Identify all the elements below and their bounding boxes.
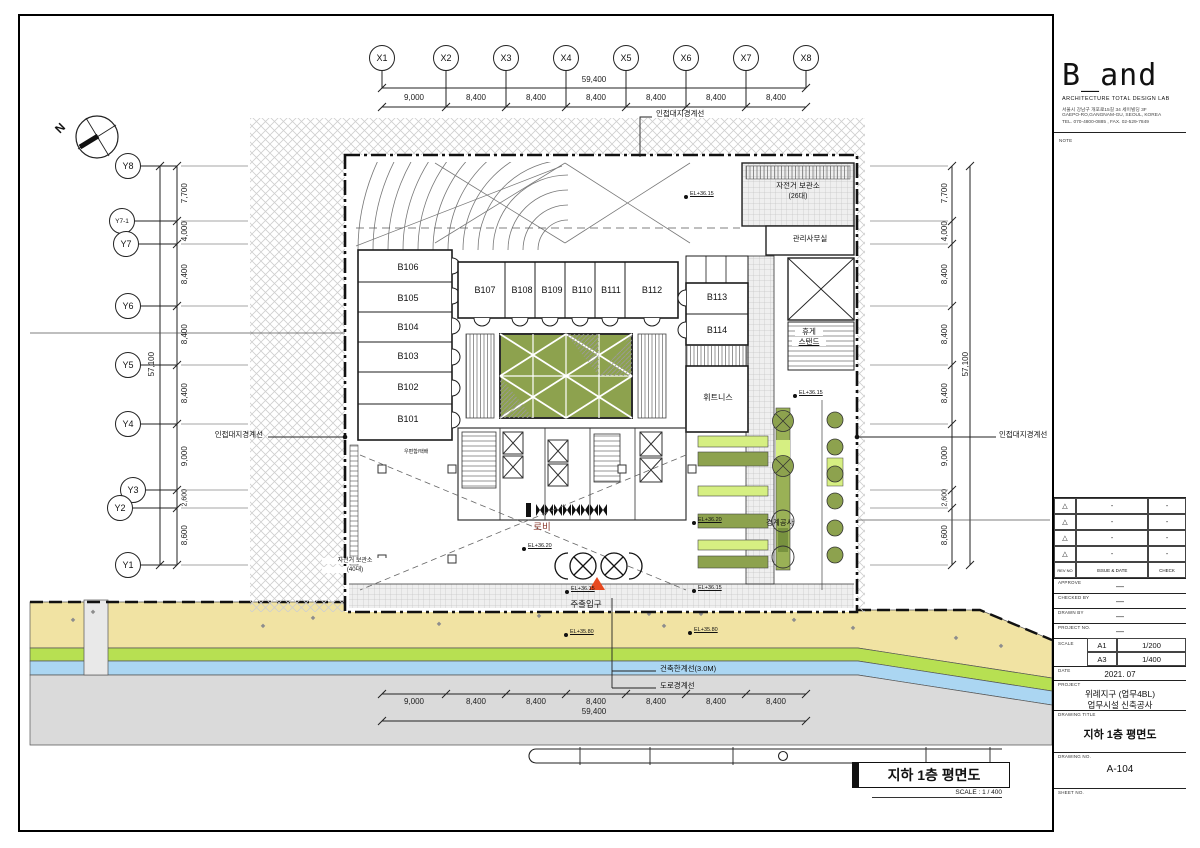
grid-bubble-x4: X4 <box>553 45 579 71</box>
rev-issue: - <box>1076 530 1148 546</box>
plan-drawing-svg <box>0 0 1200 848</box>
room-label-b106: B106 <box>370 263 446 272</box>
level-el3615-top: EL+36.15 <box>690 192 714 198</box>
dim-bottom-total: 59,400 <box>560 708 628 716</box>
title-block: B_and ARCHITECTURE TOTAL DESIGN LAB 서울시 … <box>1052 14 1184 832</box>
rev-check: - <box>1148 530 1186 546</box>
firm-address-1: 서울시 강남구 개포로15길 34 세이빌딩 3F <box>1062 106 1147 113</box>
rev-mark: △ <box>1054 546 1076 562</box>
mailbox-label: 우편함/택배 <box>404 450 428 455</box>
dim-right-total: 57,100 <box>962 339 970 389</box>
grid-bubble-y2: Y2 <box>107 495 133 521</box>
grid-bubble-y7: Y7 <box>113 231 139 257</box>
boundary-work-label: 경계공사 <box>766 519 794 527</box>
dim-top-seg: 8,400 <box>511 94 561 102</box>
room-label-b103: B103 <box>370 352 446 361</box>
drawing-scale-text: SCALE : 1 / 400 <box>872 789 1002 798</box>
dim-right-seg: 8,400 <box>941 312 949 356</box>
bike-storage-top-label: 자전거 보관소 <box>755 182 841 190</box>
sheet-no-label: SHEET NO. <box>1058 790 1084 795</box>
dim-top-seg: 8,400 <box>571 94 621 102</box>
dim-bottom-seg: 9,000 <box>389 698 439 706</box>
dim-bottom-seg: 8,400 <box>451 698 501 706</box>
site-boundary-label-top: 인접대지경계선 <box>656 110 704 118</box>
grid-bubble-y5: Y5 <box>115 352 141 378</box>
grid-bubble-y8: Y8 <box>115 153 141 179</box>
grid-bubble-x1: X1 <box>369 45 395 71</box>
dim-top-seg: 8,400 <box>691 94 741 102</box>
rev-mark: △ <box>1054 530 1076 546</box>
dim-top-seg: 8,400 <box>451 94 501 102</box>
approve-value: — <box>1054 582 1186 591</box>
dim-bottom-seg: 8,400 <box>511 698 561 706</box>
bike-storage-left-count: (40대) <box>322 567 388 573</box>
rev-mark: △ <box>1054 514 1076 530</box>
level-el3615-entrance: EL+36.15 <box>571 587 595 593</box>
scale-a3-label: A3 <box>1087 652 1117 666</box>
dim-top-seg: 8,400 <box>631 94 681 102</box>
room-label-b112: B112 <box>628 286 676 295</box>
dim-bottom-seg: 8,400 <box>631 698 681 706</box>
rev-check: - <box>1148 514 1186 530</box>
issue-date-header: ISSUE & DATE <box>1076 562 1148 578</box>
drawing-title-label: DRAWING TITLE <box>1058 712 1096 717</box>
rev-check: - <box>1148 546 1186 562</box>
firm-name: ARCHITECTURE TOTAL DESIGN LAB <box>1062 96 1170 102</box>
room-label-b114: B114 <box>693 326 741 335</box>
grid-bubble-x7: X7 <box>733 45 759 71</box>
rest-stand-label-2: 스탠드 <box>792 338 826 346</box>
dim-left-seg: 8,400 <box>181 312 189 356</box>
grid-bubble-x3: X3 <box>493 45 519 71</box>
grid-bubble-y6: Y6 <box>115 293 141 319</box>
level-el3615-planter: EL+36.15 <box>799 391 823 397</box>
rev-no-header: REV NO <box>1054 562 1076 578</box>
scale-a1-label: A1 <box>1087 638 1117 652</box>
level-el3580-walk1: EL+35.80 <box>570 630 594 636</box>
dim-left-seg: 8,400 <box>181 252 189 296</box>
grid-bubble-x2: X2 <box>433 45 459 71</box>
scale-label: SCALE <box>1058 641 1074 646</box>
drawing-title-text: 지하 1층 평면도 <box>888 765 981 785</box>
firm-logo: B_and <box>1062 58 1157 93</box>
dim-left-seg: 4,000 <box>181 209 189 253</box>
room-label-b101: B101 <box>370 415 446 424</box>
grid-bubble-x5: X5 <box>613 45 639 71</box>
dim-right-seg: 8,600 <box>941 513 949 557</box>
bike-storage-top-count: (26대) <box>755 193 841 200</box>
rev-check: - <box>1148 498 1186 514</box>
building-limit-label: 건축한계선(3.0M) <box>660 665 716 673</box>
check-header: CHECK <box>1148 562 1186 578</box>
project-label: PROJECT <box>1058 682 1080 687</box>
dim-left-seg: 9,000 <box>181 434 189 478</box>
rest-stand-label-1: 휴게 <box>795 328 823 336</box>
project-no-value: — <box>1054 627 1186 636</box>
dim-bottom-seg: 8,400 <box>571 698 621 706</box>
rev-mark: △ <box>1054 498 1076 514</box>
dim-right-seg: 9,000 <box>941 434 949 478</box>
room-label-b105: B105 <box>370 294 446 303</box>
level-el3615-right: EL+36.15 <box>698 586 722 592</box>
drawn-by-value: — <box>1054 612 1186 621</box>
level-el3580-walk2: EL+35.80 <box>694 628 718 634</box>
main-entrance-label: 주출입구 <box>556 600 616 609</box>
room-label-b113: B113 <box>693 293 741 302</box>
grid-bubble-y7-1: Y7-1 <box>109 208 135 234</box>
dim-right-seg: 8,400 <box>941 371 949 415</box>
drawing-title-bar: 지하 1층 평면도 <box>852 762 1010 788</box>
dim-left-total: 57,100 <box>148 339 156 389</box>
road-boundary-label: 도로경계선 <box>660 682 695 690</box>
bike-storage-left-label: 자전거 보관소 <box>322 558 388 564</box>
rev-issue: - <box>1076 498 1148 514</box>
dim-left-seg: 8,400 <box>181 371 189 415</box>
management-office-label: 관리사무실 <box>768 235 852 243</box>
drawing-title-value: 지하 1층 평면도 <box>1054 726 1186 742</box>
drawing-no-label: DRAWING NO. <box>1058 754 1091 759</box>
dim-right-seg: 8,400 <box>941 252 949 296</box>
grid-bubble-y4: Y4 <box>115 411 141 437</box>
date-value: 2021. 07 <box>1054 670 1186 679</box>
firm-address-3: TEL. 070-4800-0885 , FAX. 02-529-7849 <box>1062 120 1149 125</box>
rev-issue: - <box>1076 546 1148 562</box>
site-boundary-label-right: 인접대지경계선 <box>999 431 1047 439</box>
firm-address-2: GAEPO-RO,GANGNAM-GU, SEOUL, KOREA <box>1062 113 1161 118</box>
dim-top-seg: 8,400 <box>751 94 801 102</box>
rev-issue: - <box>1076 514 1148 530</box>
lobby-label: 로비 <box>520 523 564 533</box>
scale-a1-value: 1/200 <box>1117 638 1186 652</box>
drawing-no-value: A-104 <box>1054 764 1186 775</box>
grid-bubble-x6: X6 <box>673 45 699 71</box>
dim-top-total: 59,400 <box>560 76 628 84</box>
dim-top-seg: 9,000 <box>389 94 439 102</box>
scale-a3-value: 1/400 <box>1117 652 1186 666</box>
checked-by-value: — <box>1054 597 1186 606</box>
level-el3620-right: EL+36.20 <box>698 518 722 524</box>
dim-left-seg: 8,600 <box>181 513 189 557</box>
room-label-b104: B104 <box>370 323 446 332</box>
grid-bubble-y1: Y1 <box>115 552 141 578</box>
grid-bubble-x8: X8 <box>793 45 819 71</box>
site-boundary-label-left: 인접대지경계선 <box>183 431 263 439</box>
note-label: NOTE <box>1059 138 1072 143</box>
dim-bottom-seg: 8,400 <box>751 698 801 706</box>
room-label-b102: B102 <box>370 383 446 392</box>
fitness-label: 휘트니스 <box>690 394 746 402</box>
level-el3620-lobby: EL+36.20 <box>528 544 552 550</box>
dim-right-seg: 4,000 <box>941 209 949 253</box>
dim-bottom-seg: 8,400 <box>691 698 741 706</box>
